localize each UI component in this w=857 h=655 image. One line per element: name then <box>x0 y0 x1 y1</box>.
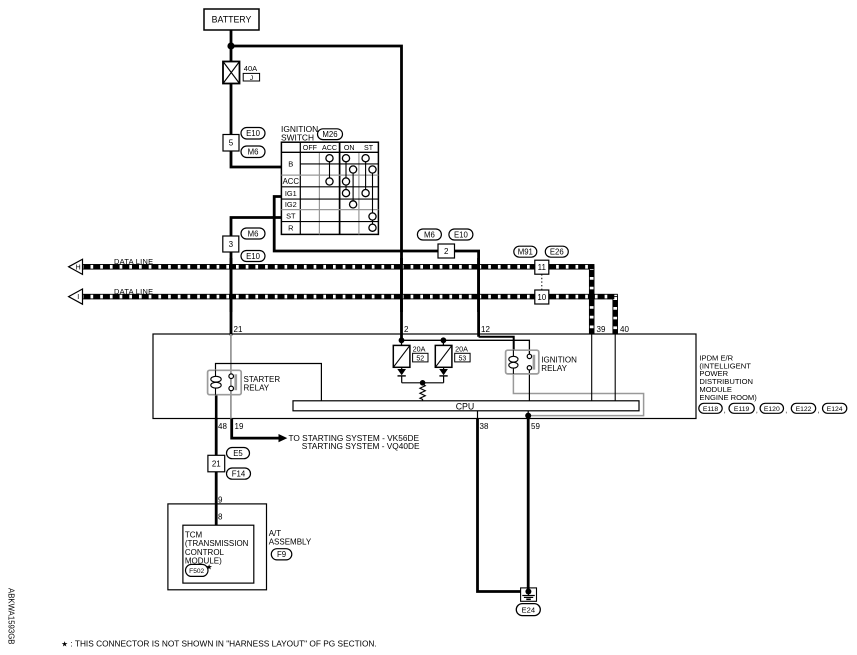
svg-text:19: 19 <box>235 422 244 431</box>
svg-text:ST: ST <box>286 211 296 220</box>
svg-text:OFF: OFF <box>303 144 318 152</box>
svg-text:B: B <box>288 160 293 169</box>
svg-text:E120: E120 <box>764 406 780 413</box>
svg-text:ASSEMBLY: ASSEMBLY <box>269 538 312 547</box>
svg-text:,: , <box>818 408 820 415</box>
svg-text:H: H <box>76 264 81 271</box>
svg-text:9: 9 <box>218 496 223 505</box>
svg-text:RELAY: RELAY <box>541 364 567 373</box>
svg-text:ACC: ACC <box>283 177 300 186</box>
svg-text:ST: ST <box>364 144 374 152</box>
svg-text:E10: E10 <box>246 129 261 138</box>
svg-text:48: 48 <box>218 422 227 431</box>
svg-text:F9: F9 <box>277 550 286 559</box>
svg-text:ABKWA1593GB: ABKWA1593GB <box>6 588 15 644</box>
svg-text:11: 11 <box>538 263 547 272</box>
svg-text:38: 38 <box>480 422 489 431</box>
svg-text:40A: 40A <box>244 64 257 73</box>
svg-text:A/T: A/T <box>269 529 282 538</box>
svg-text:39: 39 <box>597 325 606 334</box>
svg-text:20A: 20A <box>455 344 468 353</box>
svg-text:M6: M6 <box>424 230 435 239</box>
svg-text:M6: M6 <box>248 148 259 157</box>
svg-text:E122: E122 <box>796 406 812 413</box>
svg-text:★: ★ <box>206 563 213 572</box>
svg-text:12: 12 <box>481 325 490 334</box>
svg-text:STARTER: STARTER <box>244 375 281 384</box>
svg-text:53: 53 <box>459 355 467 362</box>
svg-text:M26: M26 <box>322 130 337 139</box>
svg-text:E119: E119 <box>734 406 750 413</box>
svg-text:SWITCH: SWITCH <box>281 132 314 142</box>
svg-text:(TRANSMISSION: (TRANSMISSION <box>185 539 249 548</box>
svg-text:2: 2 <box>444 247 449 256</box>
svg-text:59: 59 <box>531 422 540 431</box>
svg-text:,: , <box>724 408 726 415</box>
svg-text:10: 10 <box>537 293 546 302</box>
svg-text:40: 40 <box>620 325 629 334</box>
svg-text:5: 5 <box>229 139 234 148</box>
svg-text:I: I <box>77 294 79 301</box>
svg-text:E10: E10 <box>246 252 261 261</box>
svg-text:E26: E26 <box>550 248 564 257</box>
svg-text:ON: ON <box>344 144 355 152</box>
svg-text:52: 52 <box>416 355 424 362</box>
svg-text:BATTERY: BATTERY <box>212 15 252 25</box>
svg-text:M91: M91 <box>518 248 533 257</box>
svg-text:IG1: IG1 <box>285 189 297 198</box>
svg-text:E24: E24 <box>522 606 536 615</box>
svg-text:E5: E5 <box>233 449 243 458</box>
svg-text:CPU: CPU <box>456 401 475 411</box>
svg-text:E10: E10 <box>454 230 469 239</box>
svg-text:ACC: ACC <box>322 144 337 152</box>
svg-text:TCM: TCM <box>185 530 203 539</box>
svg-text:J: J <box>250 75 253 82</box>
svg-text:E118: E118 <box>703 406 719 413</box>
svg-text:IGNITION: IGNITION <box>541 355 577 364</box>
svg-text:STARTING SYSTEM - VQ40DE: STARTING SYSTEM - VQ40DE <box>302 441 420 451</box>
svg-text:8: 8 <box>218 513 223 522</box>
svg-text:2: 2 <box>404 325 409 334</box>
svg-text:F502: F502 <box>189 568 204 575</box>
svg-text:R: R <box>288 223 293 232</box>
svg-text:M6: M6 <box>248 229 259 238</box>
svg-text:RELAY: RELAY <box>244 384 270 393</box>
svg-text:IG2: IG2 <box>285 200 297 209</box>
svg-text:21: 21 <box>212 459 221 468</box>
svg-text:20A: 20A <box>413 344 426 353</box>
svg-text:F14: F14 <box>232 470 246 479</box>
svg-text:,: , <box>785 408 787 415</box>
svg-text:CONTROL: CONTROL <box>185 548 225 557</box>
svg-text:3: 3 <box>229 240 234 249</box>
svg-text:E124: E124 <box>827 406 843 413</box>
svg-text:★ : THIS CONNECTOR IS NOT SHOW: ★ : THIS CONNECTOR IS NOT SHOWN IN "HARN… <box>61 638 376 648</box>
svg-text:,: , <box>756 408 758 415</box>
svg-text:ENGINE ROOM): ENGINE ROOM) <box>699 393 757 402</box>
svg-text:21: 21 <box>234 325 243 334</box>
